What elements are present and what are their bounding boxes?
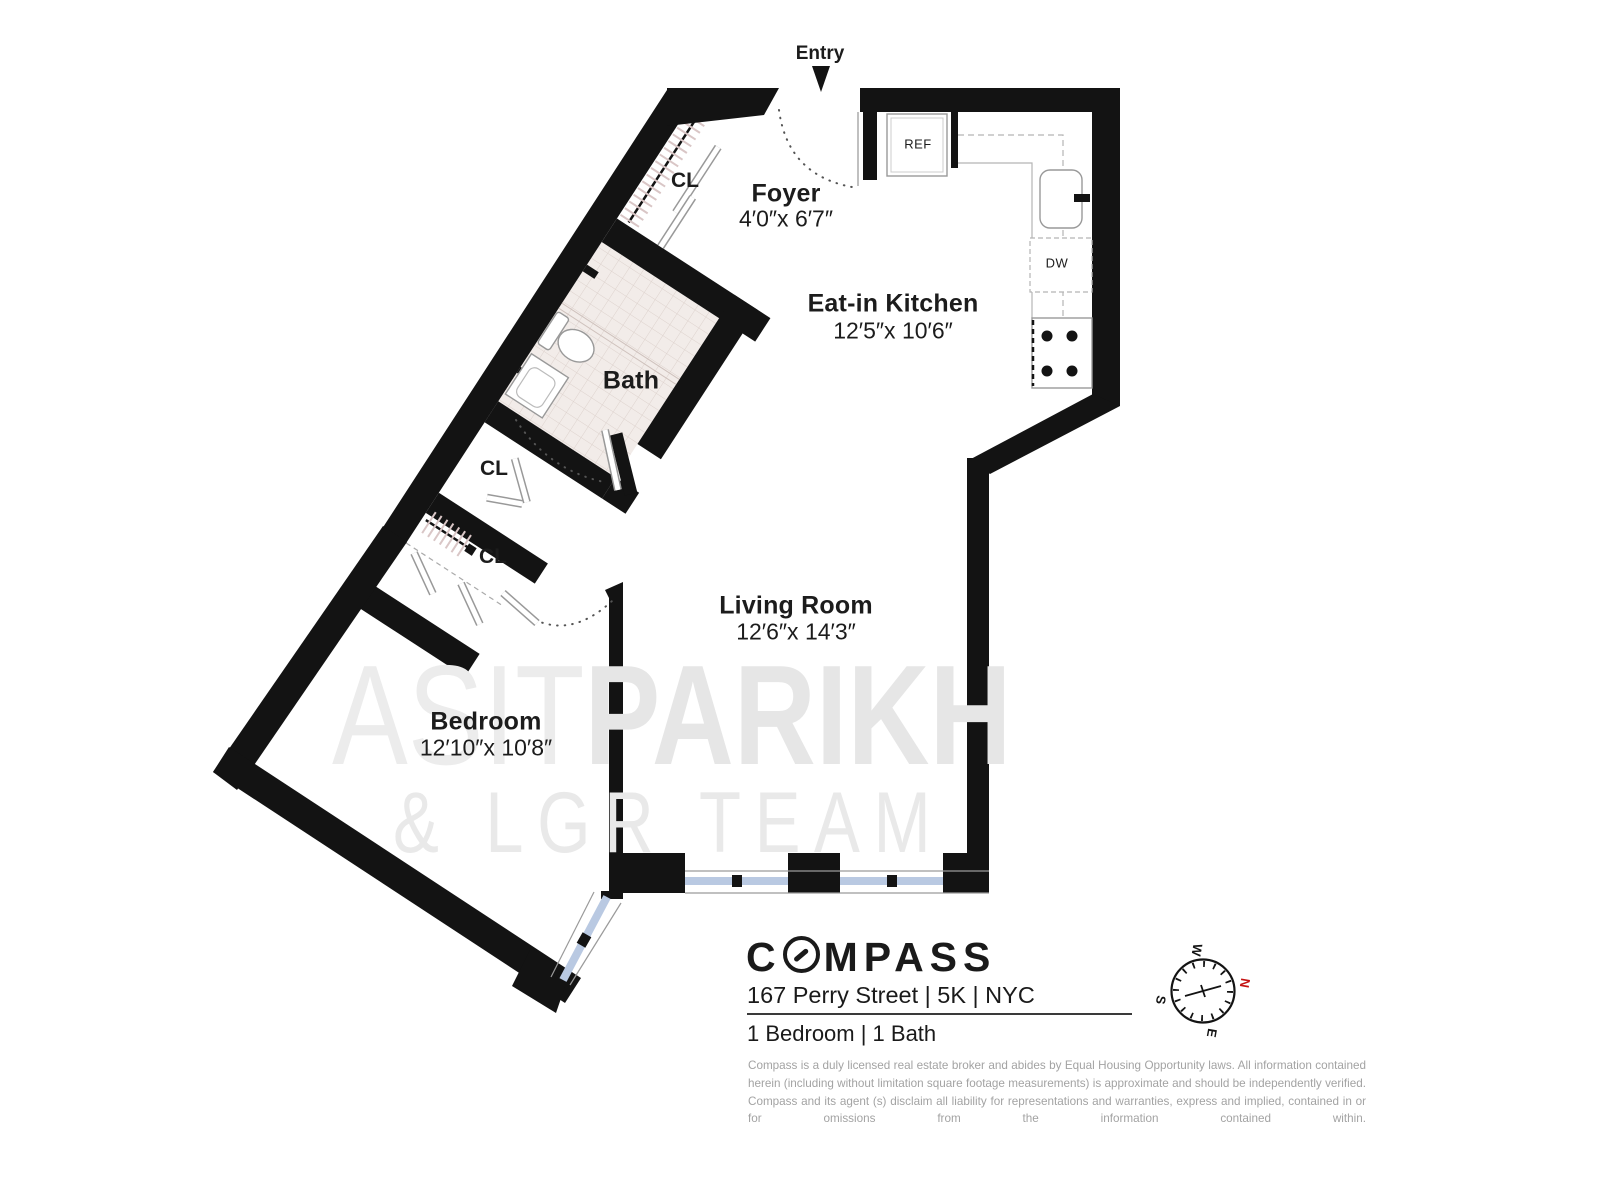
watermark-last-name: PARIKH bbox=[585, 636, 1012, 795]
burner-1 bbox=[1042, 331, 1053, 342]
closet1-door-leaf-2 bbox=[487, 486, 522, 516]
watermark-team: & LGR TEAM bbox=[393, 780, 944, 866]
compass-rose-icon: W N S E bbox=[1153, 943, 1253, 1039]
living-name: Living Room bbox=[719, 592, 873, 621]
ref-thin-wall bbox=[951, 110, 958, 168]
bedroom-door-leaf bbox=[503, 593, 537, 623]
living-dims: 12′6″x 14′3″ bbox=[736, 619, 856, 646]
kitchen-diagonal-wall bbox=[969, 394, 1120, 474]
refrigerator-label: REF bbox=[904, 137, 932, 152]
compass-o-icon bbox=[783, 936, 820, 973]
window-mullion-2 bbox=[887, 875, 897, 887]
window-pier-right bbox=[943, 853, 989, 893]
listing-address: 167 Perry Street | 5K | NYC bbox=[747, 982, 1035, 1009]
entry-label: Entry bbox=[796, 43, 845, 65]
counter-edge bbox=[958, 163, 1032, 238]
stove bbox=[1032, 318, 1092, 388]
burner-2 bbox=[1067, 331, 1078, 342]
footer-divider bbox=[747, 1013, 1132, 1015]
bedroom-dims: 12′10″x 10′8″ bbox=[420, 735, 552, 762]
bedroom-name: Bedroom bbox=[430, 708, 541, 737]
closet-label-foyer: CL bbox=[671, 169, 699, 193]
rose-north-label: N bbox=[1237, 977, 1253, 989]
kitchen-dims: 12′5″x 10′6″ bbox=[833, 318, 953, 345]
legal-disclaimer: Compass is a duly licensed real estate b… bbox=[748, 1057, 1366, 1128]
rose-west-label: W bbox=[1188, 943, 1205, 958]
entry-door-arc bbox=[779, 110, 858, 188]
foyer-top-wall bbox=[667, 88, 779, 126]
listing-summary: 1 Bedroom | 1 Bath bbox=[747, 1021, 936, 1047]
closet-label-mid: CL bbox=[480, 457, 508, 481]
floorplan-page: ASITPARIKH & LGR TEAM bbox=[0, 0, 1600, 1200]
kitchen-faucet bbox=[1074, 194, 1090, 202]
kitchen-top-wall bbox=[860, 88, 1120, 112]
rose-east-label: E bbox=[1204, 1027, 1220, 1038]
closet-label-lower: CL bbox=[479, 545, 507, 569]
brand-rest: MPASS bbox=[824, 934, 997, 980]
closet2-door-leaf-2 bbox=[448, 583, 493, 624]
compass-logo: CMPASS bbox=[746, 934, 996, 981]
foyer-name: Foyer bbox=[751, 180, 820, 209]
kitchen-name: Eat-in Kitchen bbox=[808, 290, 979, 319]
burner-3 bbox=[1042, 366, 1053, 377]
window-mullion-1 bbox=[732, 875, 742, 887]
dishwasher-label: DW bbox=[1046, 256, 1069, 271]
rose-south-label: S bbox=[1153, 994, 1169, 1005]
foyer-dims: 4′0″x 6′7″ bbox=[739, 206, 833, 233]
entry-arrow-icon bbox=[812, 66, 830, 92]
closet2-door-leaf bbox=[401, 553, 446, 594]
burner-4 bbox=[1067, 366, 1078, 377]
compass-o-needle bbox=[793, 947, 809, 961]
kitchen-right-wall bbox=[1092, 88, 1120, 406]
brand-c: C bbox=[746, 934, 782, 980]
bath-name: Bath bbox=[603, 367, 659, 396]
ref-alcove-wall bbox=[863, 110, 877, 180]
